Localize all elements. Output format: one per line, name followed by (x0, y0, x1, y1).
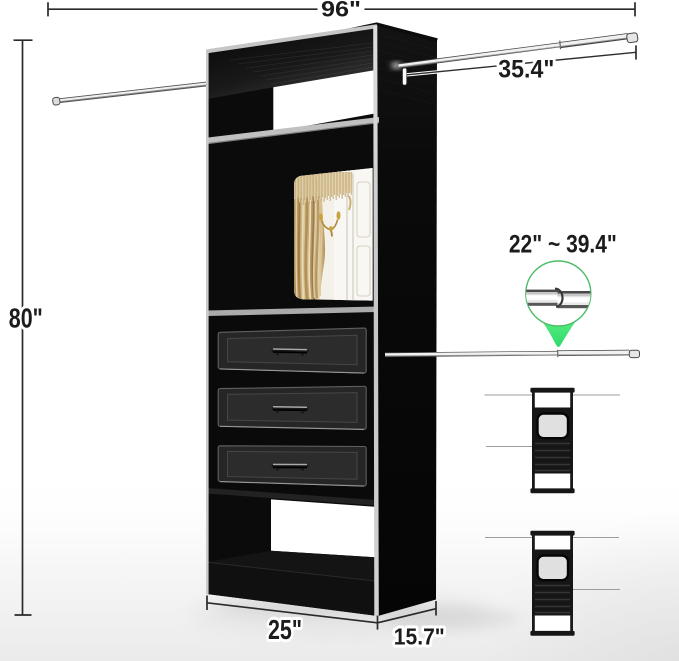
svg-text:80": 80" (9, 302, 43, 333)
svg-text:22" ~ 39.4": 22" ~ 39.4" (509, 231, 617, 259)
svg-text:35.4": 35.4" (498, 56, 554, 84)
svg-text:25": 25" (268, 614, 302, 645)
svg-text:96": 96" (321, 0, 361, 22)
svg-text:15.7": 15.7" (394, 624, 445, 650)
